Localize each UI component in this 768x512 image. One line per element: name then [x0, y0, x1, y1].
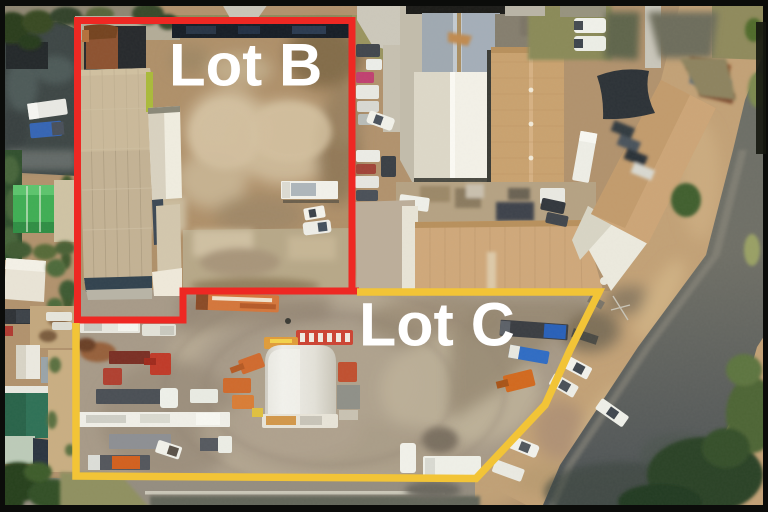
svg-text:Lot B: Lot B	[169, 32, 322, 99]
svg-text:Lot C: Lot C	[359, 291, 515, 359]
